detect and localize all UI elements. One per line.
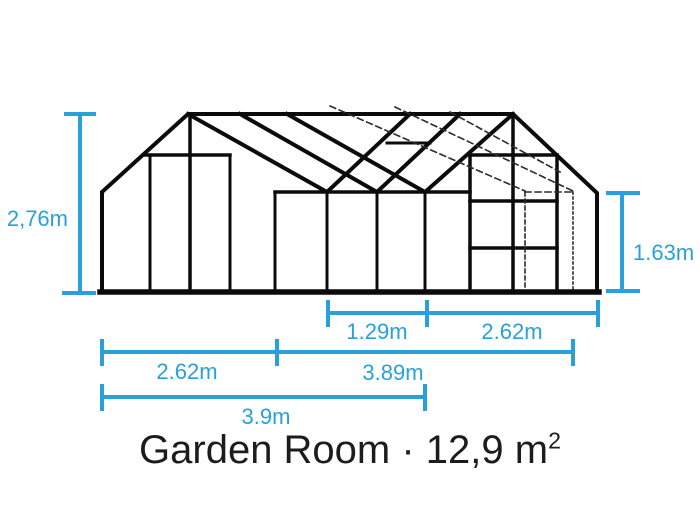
front-wall-glazing <box>275 192 470 292</box>
label-overall-height: 2,76m <box>6 207 68 231</box>
label-main-section-width: 3.89m <box>283 361 503 385</box>
label-total-width: 3.9m <box>166 405 366 429</box>
dimension-line-overall-height <box>64 114 94 293</box>
silhouette-outline <box>100 114 599 292</box>
label-side-height: 1.63m <box>633 241 694 265</box>
product-title-text: Garden Room · 12,9 m <box>139 428 548 472</box>
product-title: Garden Room · 12,9 m2 <box>0 428 700 472</box>
greenhouse-structure <box>100 114 599 292</box>
product-dimension-diagram: 2,76m 1.63m 1.29m 2.62m 2.62m 3.89m 3.9m… <box>0 0 700 525</box>
roof-glazing-bars <box>188 114 513 192</box>
label-left-section-width: 2.62m <box>102 360 272 384</box>
product-title-superscript: 2 <box>548 428 561 454</box>
label-right-section-width: 2.62m <box>427 320 597 344</box>
label-door-bay-width: 1.29m <box>327 320 427 344</box>
